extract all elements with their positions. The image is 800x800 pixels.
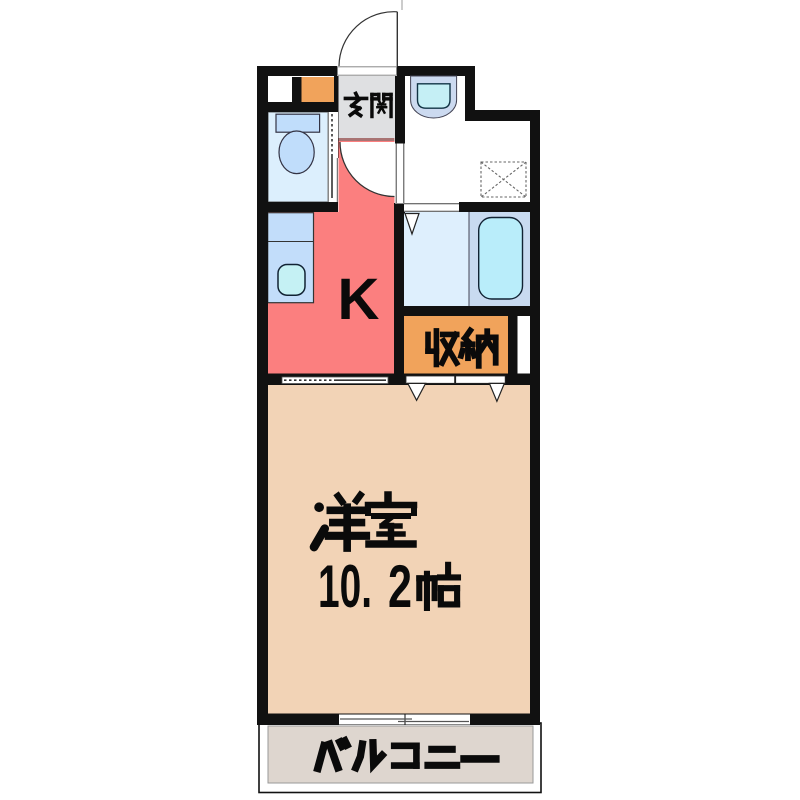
svg-text:10.: 10. xyxy=(318,553,372,620)
svg-text:K: K xyxy=(338,267,380,332)
svg-text:2: 2 xyxy=(388,553,412,620)
